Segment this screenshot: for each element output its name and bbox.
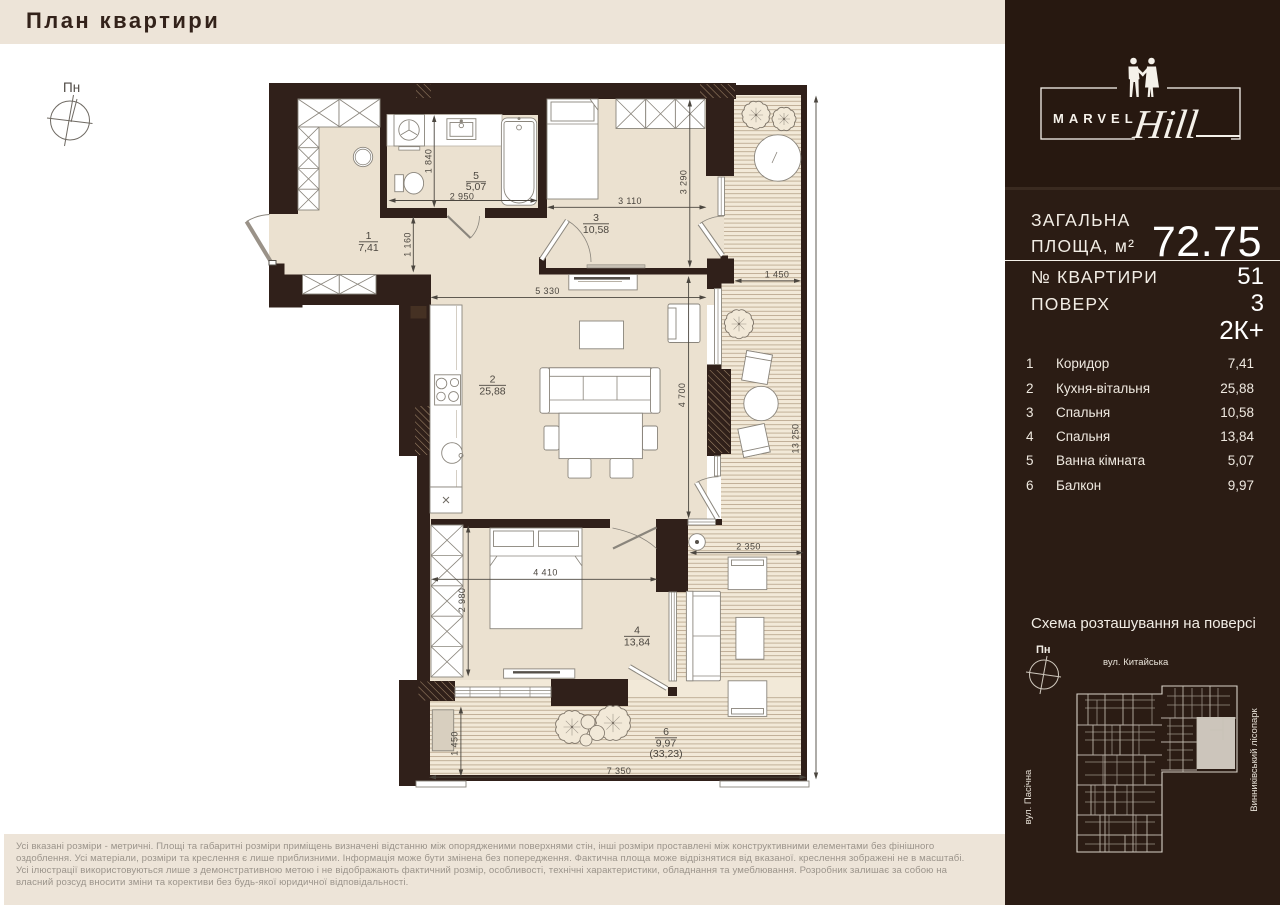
svg-text:Пн: Пн bbox=[63, 80, 80, 95]
svg-text:1 450: 1 450 bbox=[765, 270, 790, 280]
svg-text:7,41: 7,41 bbox=[358, 242, 379, 254]
svg-text:Пн: Пн bbox=[1036, 644, 1051, 656]
svg-text:7 350: 7 350 bbox=[607, 766, 632, 776]
svg-text:1 840: 1 840 bbox=[424, 149, 434, 174]
svg-text:10,58: 10,58 bbox=[583, 224, 609, 236]
svg-text:5,07: 5,07 bbox=[466, 181, 487, 193]
svg-text:13,84: 13,84 bbox=[624, 637, 650, 649]
svg-text:4 410: 4 410 bbox=[533, 568, 558, 578]
svg-text:25,88: 25,88 bbox=[479, 386, 505, 398]
svg-text:3 110: 3 110 bbox=[618, 196, 642, 206]
svg-text:2: 2 bbox=[490, 374, 496, 386]
svg-text:(33,23): (33,23) bbox=[649, 748, 682, 760]
svg-text:2 350: 2 350 bbox=[736, 542, 761, 552]
svg-text:13 250: 13 250 bbox=[791, 424, 801, 454]
svg-text:3 290: 3 290 bbox=[679, 170, 689, 195]
svg-text:вул. Пасічна: вул. Пасічна bbox=[1023, 769, 1034, 824]
svg-text:4 700: 4 700 bbox=[677, 383, 687, 408]
svg-text:Винниківський лісопарк: Винниківський лісопарк bbox=[1249, 707, 1260, 811]
svg-text:вул. Китайська: вул. Китайська bbox=[1103, 657, 1169, 668]
svg-text:1 450: 1 450 bbox=[450, 731, 460, 756]
svg-text:5 330: 5 330 bbox=[535, 286, 560, 296]
svg-text:3: 3 bbox=[593, 212, 599, 224]
svg-text:1: 1 bbox=[366, 230, 372, 242]
svg-text:2 980: 2 980 bbox=[457, 588, 467, 613]
svg-text:1 160: 1 160 bbox=[403, 232, 413, 257]
svg-text:6: 6 bbox=[663, 726, 669, 738]
svg-text:4: 4 bbox=[634, 625, 640, 637]
